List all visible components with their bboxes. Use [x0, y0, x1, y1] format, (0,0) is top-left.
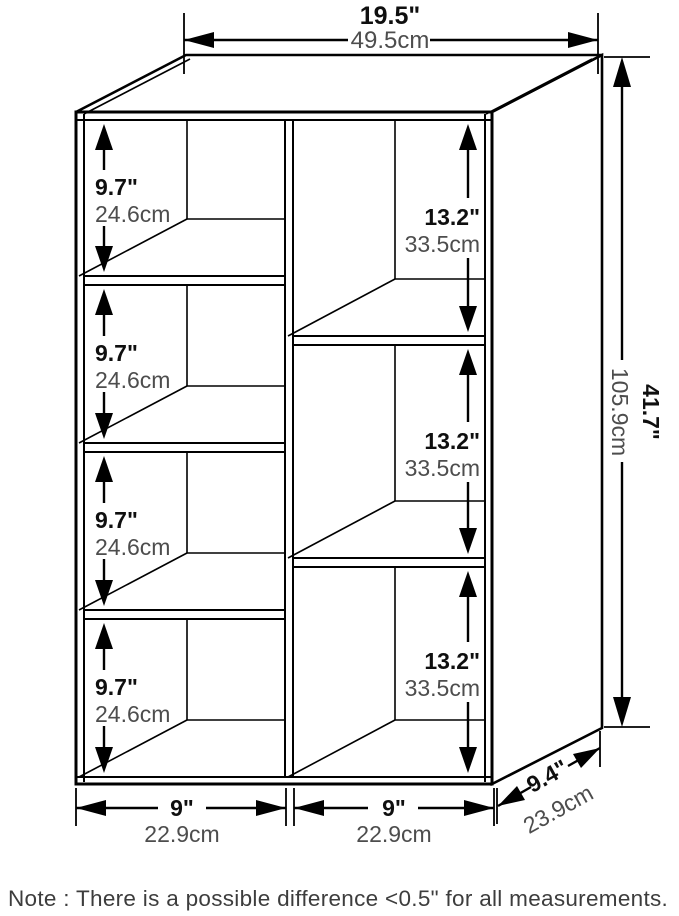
compartment-arrow-up-head	[459, 349, 477, 375]
bottom-width-2-arrowhead-left	[294, 800, 324, 816]
compartment-cm-label: 33.5cm	[405, 231, 480, 257]
width-arrowhead-left	[184, 32, 214, 48]
side-panel	[492, 55, 602, 784]
bottom-width-2-inches-label: 9"	[382, 795, 406, 821]
compartment-inches-label: 9.7"	[95, 507, 138, 533]
dim-left-compartment-2: 9.7" 24.6cm	[95, 289, 170, 439]
bottom-width-1-inches-label: 9"	[170, 795, 194, 821]
compartment-cm-label: 24.6cm	[95, 201, 170, 227]
width-cm-label: 49.5cm	[351, 27, 430, 54]
compartment-cm-label: 33.5cm	[405, 675, 480, 701]
measurement-note: Note : There is a possible difference <0…	[8, 886, 668, 911]
compartment-inches-label: 13.2"	[424, 204, 480, 230]
dim-right-compartment-2: 13.2" 33.5cm	[405, 349, 480, 554]
compartment-cm-label: 24.6cm	[95, 701, 170, 727]
compartment-inches-label: 9.7"	[95, 674, 138, 700]
bottom-width-1-arrowhead-left	[76, 800, 106, 816]
bottom-width-2-arrowhead-right	[464, 800, 494, 816]
bottom-width-1-arrowhead-right	[256, 800, 286, 816]
dim-right-compartment-1: 13.2" 33.5cm	[405, 124, 480, 332]
furniture-dimension-diagram: 19.5" 49.5cm 41.7" 105.9cm 9.4" 23.9cm 9…	[0, 0, 679, 916]
dim-depth: 9.4" 23.9cm	[497, 731, 600, 839]
bottom-width-1-cm-label: 22.9cm	[144, 821, 219, 847]
dim-right-compartment-3: 13.2" 33.5cm	[405, 571, 480, 773]
height-cm-label: 105.9cm	[607, 368, 633, 456]
compartment-inches-label: 13.2"	[424, 648, 480, 674]
height-arrowhead-top	[613, 57, 631, 87]
dim-left-compartment-3: 9.7" 24.6cm	[95, 456, 170, 606]
compartment-cm-label: 24.6cm	[95, 367, 170, 393]
compartment-inches-label: 9.7"	[95, 174, 138, 200]
depth-arrowhead-front	[498, 786, 525, 806]
compartment-arrow-down-head	[459, 306, 477, 332]
compartment-cm-label: 33.5cm	[405, 455, 480, 481]
dim-bottom-left-span: 9" 22.9cm	[76, 788, 294, 847]
compartment-arrow-up-head	[95, 124, 113, 150]
dim-left-compartment-4: 9.7" 24.6cm	[95, 623, 170, 773]
top-face	[76, 55, 602, 114]
cabinet-drawing	[76, 55, 602, 784]
compartment-arrow-down-head	[459, 747, 477, 773]
compartment-arrow-down-head	[459, 528, 477, 554]
dim-bottom-right-span: 9" 22.9cm	[294, 788, 494, 847]
compartment-arrow-up-head	[95, 623, 113, 649]
height-inches-label: 41.7"	[638, 384, 664, 440]
dim-overall-width: 19.5" 49.5cm	[184, 2, 598, 74]
compartment-cm-label: 24.6cm	[95, 534, 170, 560]
compartment-inches-label: 13.2"	[424, 428, 480, 454]
depth-arrowhead-back	[573, 748, 600, 768]
center-divider	[285, 120, 293, 777]
dim-left-compartment-1: 9.7" 24.6cm	[95, 124, 170, 272]
compartment-arrow-up-head	[95, 456, 113, 482]
bottom-width-2-cm-label: 22.9cm	[356, 821, 431, 847]
height-arrowhead-bottom	[613, 697, 631, 727]
width-arrowhead-right	[568, 32, 598, 48]
compartment-arrow-up-head	[95, 289, 113, 315]
compartment-arrow-up-head	[459, 571, 477, 597]
dim-overall-height: 41.7" 105.9cm	[604, 57, 664, 727]
compartment-inches-label: 9.7"	[95, 340, 138, 366]
width-inches-label: 19.5"	[360, 2, 421, 30]
compartment-arrow-up-head	[459, 124, 477, 150]
